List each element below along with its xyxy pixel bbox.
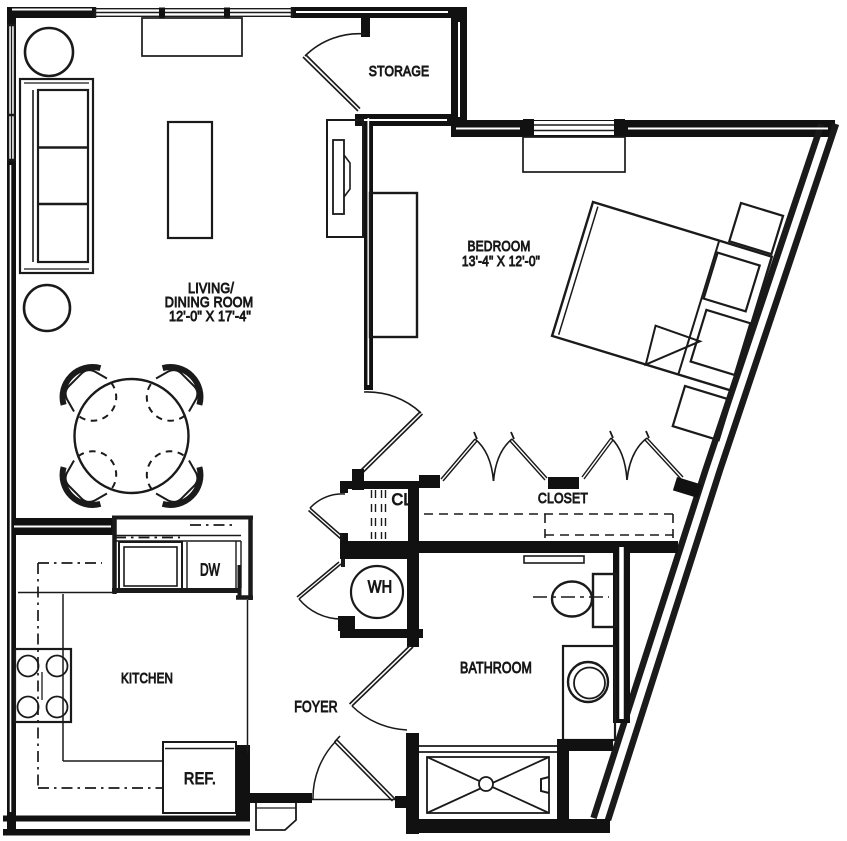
svg-text:DW: DW xyxy=(200,560,221,580)
svg-text:KITCHEN: KITCHEN xyxy=(121,670,173,687)
svg-text:WH: WH xyxy=(368,577,393,597)
svg-text:13'-4" X 12'-0": 13'-4" X 12'-0" xyxy=(462,253,540,270)
svg-text:STORAGE: STORAGE xyxy=(369,63,429,79)
svg-text:REF.: REF. xyxy=(184,770,216,788)
svg-text:CLOSET: CLOSET xyxy=(538,490,589,506)
svg-text:12'-0" X 17'-4": 12'-0" X 17'-4" xyxy=(169,307,251,324)
svg-text:FOYER: FOYER xyxy=(294,698,337,716)
svg-text:BATHROOM: BATHROOM xyxy=(460,659,532,677)
